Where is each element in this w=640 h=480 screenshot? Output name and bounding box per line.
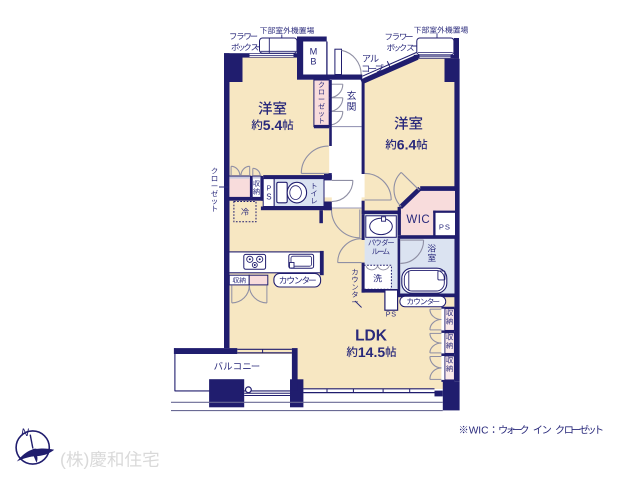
svg-text:S: S <box>266 193 271 202</box>
svg-text:5.4: 5.4 <box>263 117 283 133</box>
svg-text:M: M <box>310 47 318 57</box>
svg-text:14.5: 14.5 <box>358 344 385 360</box>
svg-text:N: N <box>21 427 29 439</box>
svg-text:B: B <box>310 57 316 67</box>
svg-text:P: P <box>267 184 272 193</box>
svg-text:WIC: WIC <box>406 214 430 226</box>
svg-text:(: ( <box>60 450 66 470</box>
svg-text:PS: PS <box>386 310 397 319</box>
svg-text:6.4: 6.4 <box>397 136 417 152</box>
svg-text:PS: PS <box>439 222 451 231</box>
svg-text:LDK: LDK <box>355 327 388 344</box>
svg-text:WIC: WIC <box>469 425 489 436</box>
svg-text:): ) <box>84 450 90 470</box>
